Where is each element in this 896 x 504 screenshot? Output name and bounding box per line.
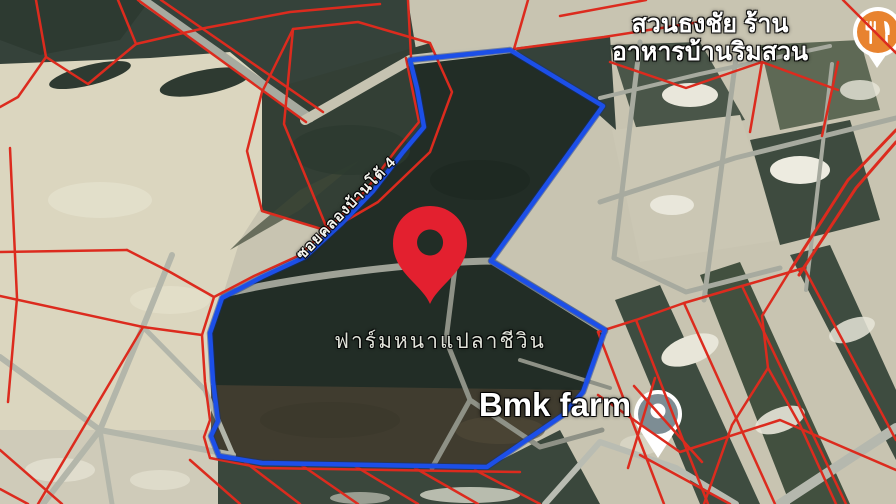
restaurant-name-line2: อาหารบ้านริมสวน (560, 38, 860, 66)
restaurant-name-line1: สวนธงชัย ร้าน (560, 10, 860, 38)
area-name-label[interactable]: ฟาร์มหนาแปลาชีวิน (290, 325, 590, 358)
restaurant-poi-label[interactable]: สวนธงชัย ร้าน อาหารบ้านริมสวน (560, 10, 860, 66)
map-screenshot: สวนธงชัย ร้าน อาหารบ้านริมสวน ซอยคลองบ้า… (0, 0, 896, 504)
bmk-farm-poi-label[interactable]: Bmk farm (470, 386, 640, 424)
road-name-label: ซอยคลองบ้านโต้ 4 (254, 113, 438, 302)
label-layer: สวนธงชัย ร้าน อาหารบ้านริมสวน ซอยคลองบ้า… (0, 0, 896, 504)
